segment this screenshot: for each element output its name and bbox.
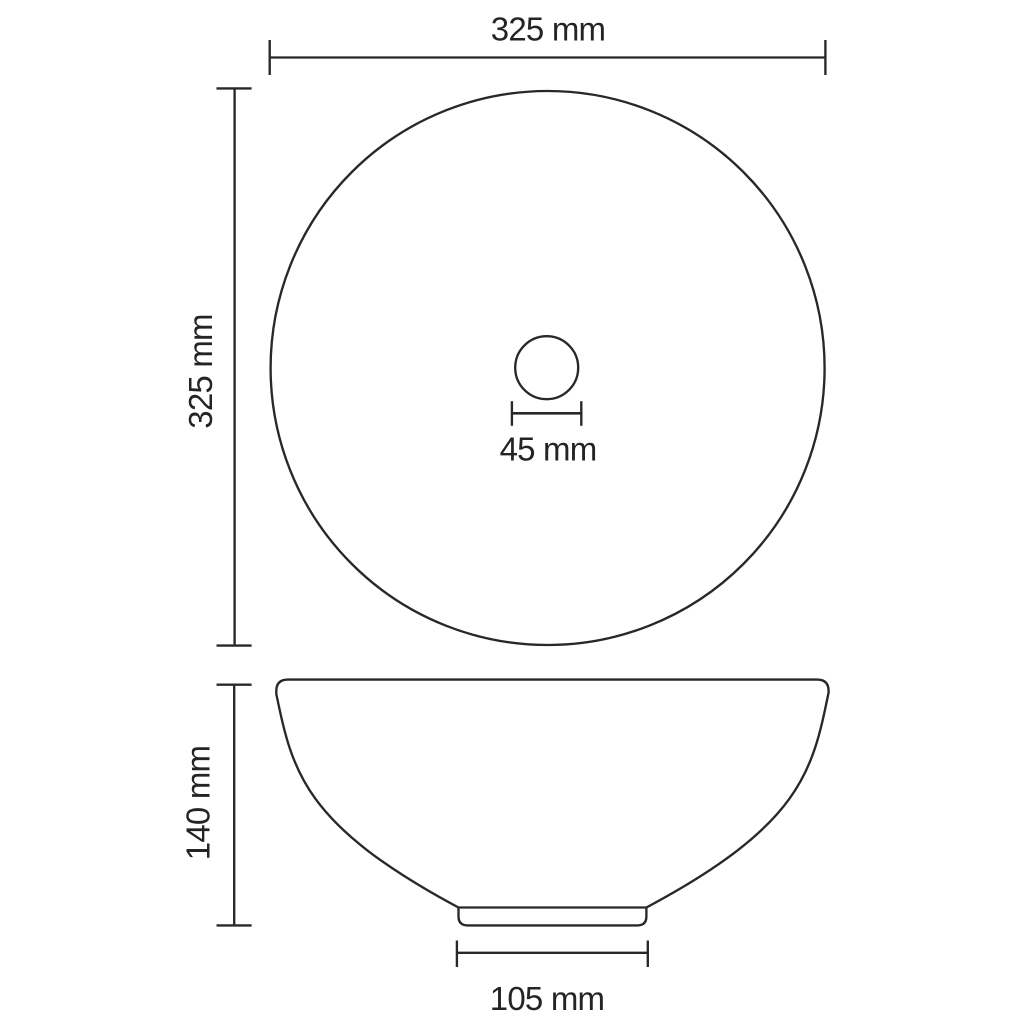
- svg-text:325 mm: 325 mm: [491, 11, 605, 48]
- svg-text:140 mm: 140 mm: [180, 746, 217, 860]
- svg-text:45 mm: 45 mm: [500, 430, 597, 467]
- svg-text:105 mm: 105 mm: [490, 980, 604, 1017]
- svg-text:325 mm: 325 mm: [182, 314, 219, 428]
